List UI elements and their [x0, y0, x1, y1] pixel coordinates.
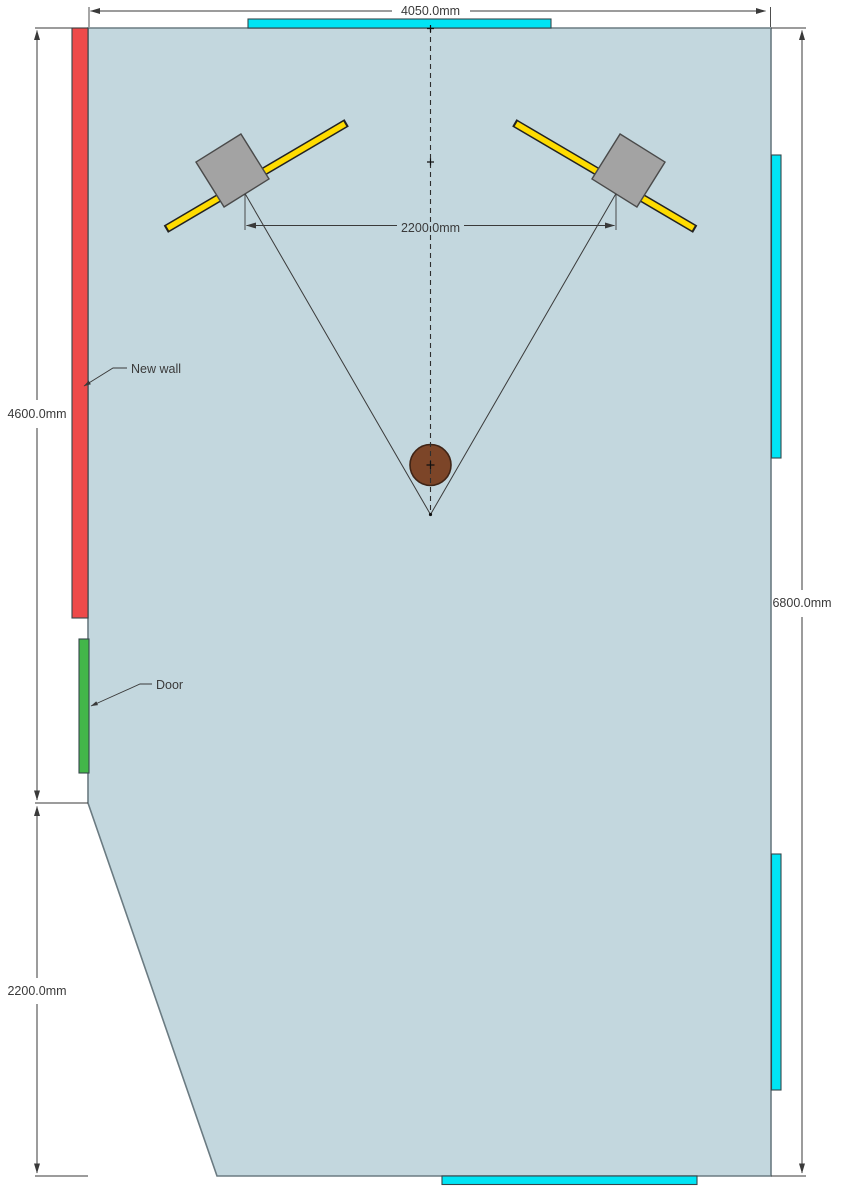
- apex-point: [429, 513, 432, 516]
- room-outline[interactable]: [88, 28, 771, 1176]
- dim-left-lower-label: 2200.0mm: [7, 984, 66, 998]
- dim-right-label: 6800.0mm: [772, 596, 831, 610]
- door-label: Door: [156, 678, 183, 692]
- dim-speakers-label: 2200.0mm: [401, 221, 460, 235]
- window-right-lower[interactable]: [772, 854, 782, 1090]
- new-wall-rect[interactable]: [72, 28, 88, 618]
- window-bottom[interactable]: [442, 1176, 697, 1185]
- dim-left-upper-label: 4600.0mm: [7, 407, 66, 421]
- window-top[interactable]: [248, 19, 551, 28]
- floor-plan-canvas: 4050.0mm 4600.0mm 2200.0mm 6800.0mm 2200…: [0, 0, 842, 1200]
- window-right-upper[interactable]: [772, 155, 782, 458]
- door-rect[interactable]: [79, 639, 89, 773]
- new-wall-label: New wall: [131, 362, 181, 376]
- dim-top-label: 4050.0mm: [401, 4, 460, 18]
- floor-plan-svg: 4050.0mm 4600.0mm 2200.0mm 6800.0mm 2200…: [0, 0, 842, 1200]
